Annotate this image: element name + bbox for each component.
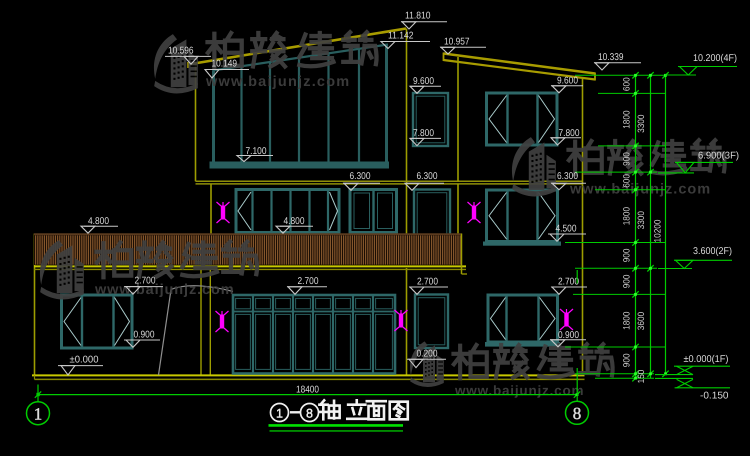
svg-text:3300: 3300 — [636, 115, 646, 133]
svg-text:3300: 3300 — [636, 211, 646, 229]
svg-text:4.500: 4.500 — [556, 224, 577, 235]
svg-text:900: 900 — [622, 353, 632, 367]
svg-text:6.900(3F): 6.900(3F) — [698, 150, 739, 161]
svg-text:0.900: 0.900 — [134, 330, 155, 341]
svg-text:2.700: 2.700 — [558, 277, 579, 288]
svg-text:www.baijunjz.com: www.baijunjz.com — [454, 383, 584, 398]
svg-text:10.149: 10.149 — [212, 59, 238, 70]
svg-text:1: 1 — [276, 406, 283, 420]
svg-text:18400: 18400 — [296, 385, 319, 396]
svg-text:2.700: 2.700 — [135, 276, 156, 287]
svg-text:10200: 10200 — [653, 220, 663, 243]
svg-text:-0.150: -0.150 — [700, 391, 729, 402]
svg-text:±0.000(1F): ±0.000(1F) — [684, 354, 729, 365]
svg-text:1800: 1800 — [622, 207, 632, 225]
svg-text:1800: 1800 — [622, 312, 632, 330]
svg-text:4.800: 4.800 — [88, 216, 109, 227]
svg-text:3600: 3600 — [636, 312, 646, 330]
svg-text:600: 600 — [622, 174, 632, 188]
svg-text:6.300: 6.300 — [350, 171, 371, 182]
svg-text:10.339: 10.339 — [598, 52, 624, 63]
svg-text:9.600: 9.600 — [413, 76, 434, 87]
svg-text:7.800: 7.800 — [413, 128, 434, 139]
svg-text:www.baijunjz.com: www.baijunjz.com — [205, 74, 350, 90]
svg-text:11.142: 11.142 — [388, 31, 414, 42]
svg-text:10.957: 10.957 — [444, 36, 470, 47]
svg-text:8: 8 — [573, 404, 582, 423]
svg-text:2.700: 2.700 — [417, 277, 438, 288]
svg-text:3.600(2F): 3.600(2F) — [693, 246, 732, 257]
svg-text:8: 8 — [306, 406, 313, 420]
svg-text:600: 600 — [622, 77, 632, 91]
svg-text:900: 900 — [622, 152, 632, 166]
svg-text:±0.000: ±0.000 — [70, 355, 100, 366]
svg-text:6.300: 6.300 — [417, 171, 438, 182]
svg-text:6.300: 6.300 — [557, 171, 578, 182]
svg-text:10.200(4F): 10.200(4F) — [693, 53, 737, 64]
svg-text:1: 1 — [34, 404, 43, 423]
svg-text:9.600: 9.600 — [557, 76, 578, 87]
svg-text:150: 150 — [636, 370, 646, 384]
svg-text:1800: 1800 — [622, 110, 632, 128]
svg-text:2.700: 2.700 — [298, 276, 319, 287]
svg-text:0.200: 0.200 — [417, 349, 438, 360]
svg-text:900: 900 — [622, 275, 632, 289]
svg-text:11.810: 11.810 — [405, 11, 431, 22]
svg-text:900: 900 — [622, 249, 632, 263]
svg-text:www.baijunjz.com: www.baijunjz.com — [94, 282, 235, 298]
svg-text:4.800: 4.800 — [284, 216, 305, 227]
svg-text:10.596: 10.596 — [168, 46, 194, 57]
